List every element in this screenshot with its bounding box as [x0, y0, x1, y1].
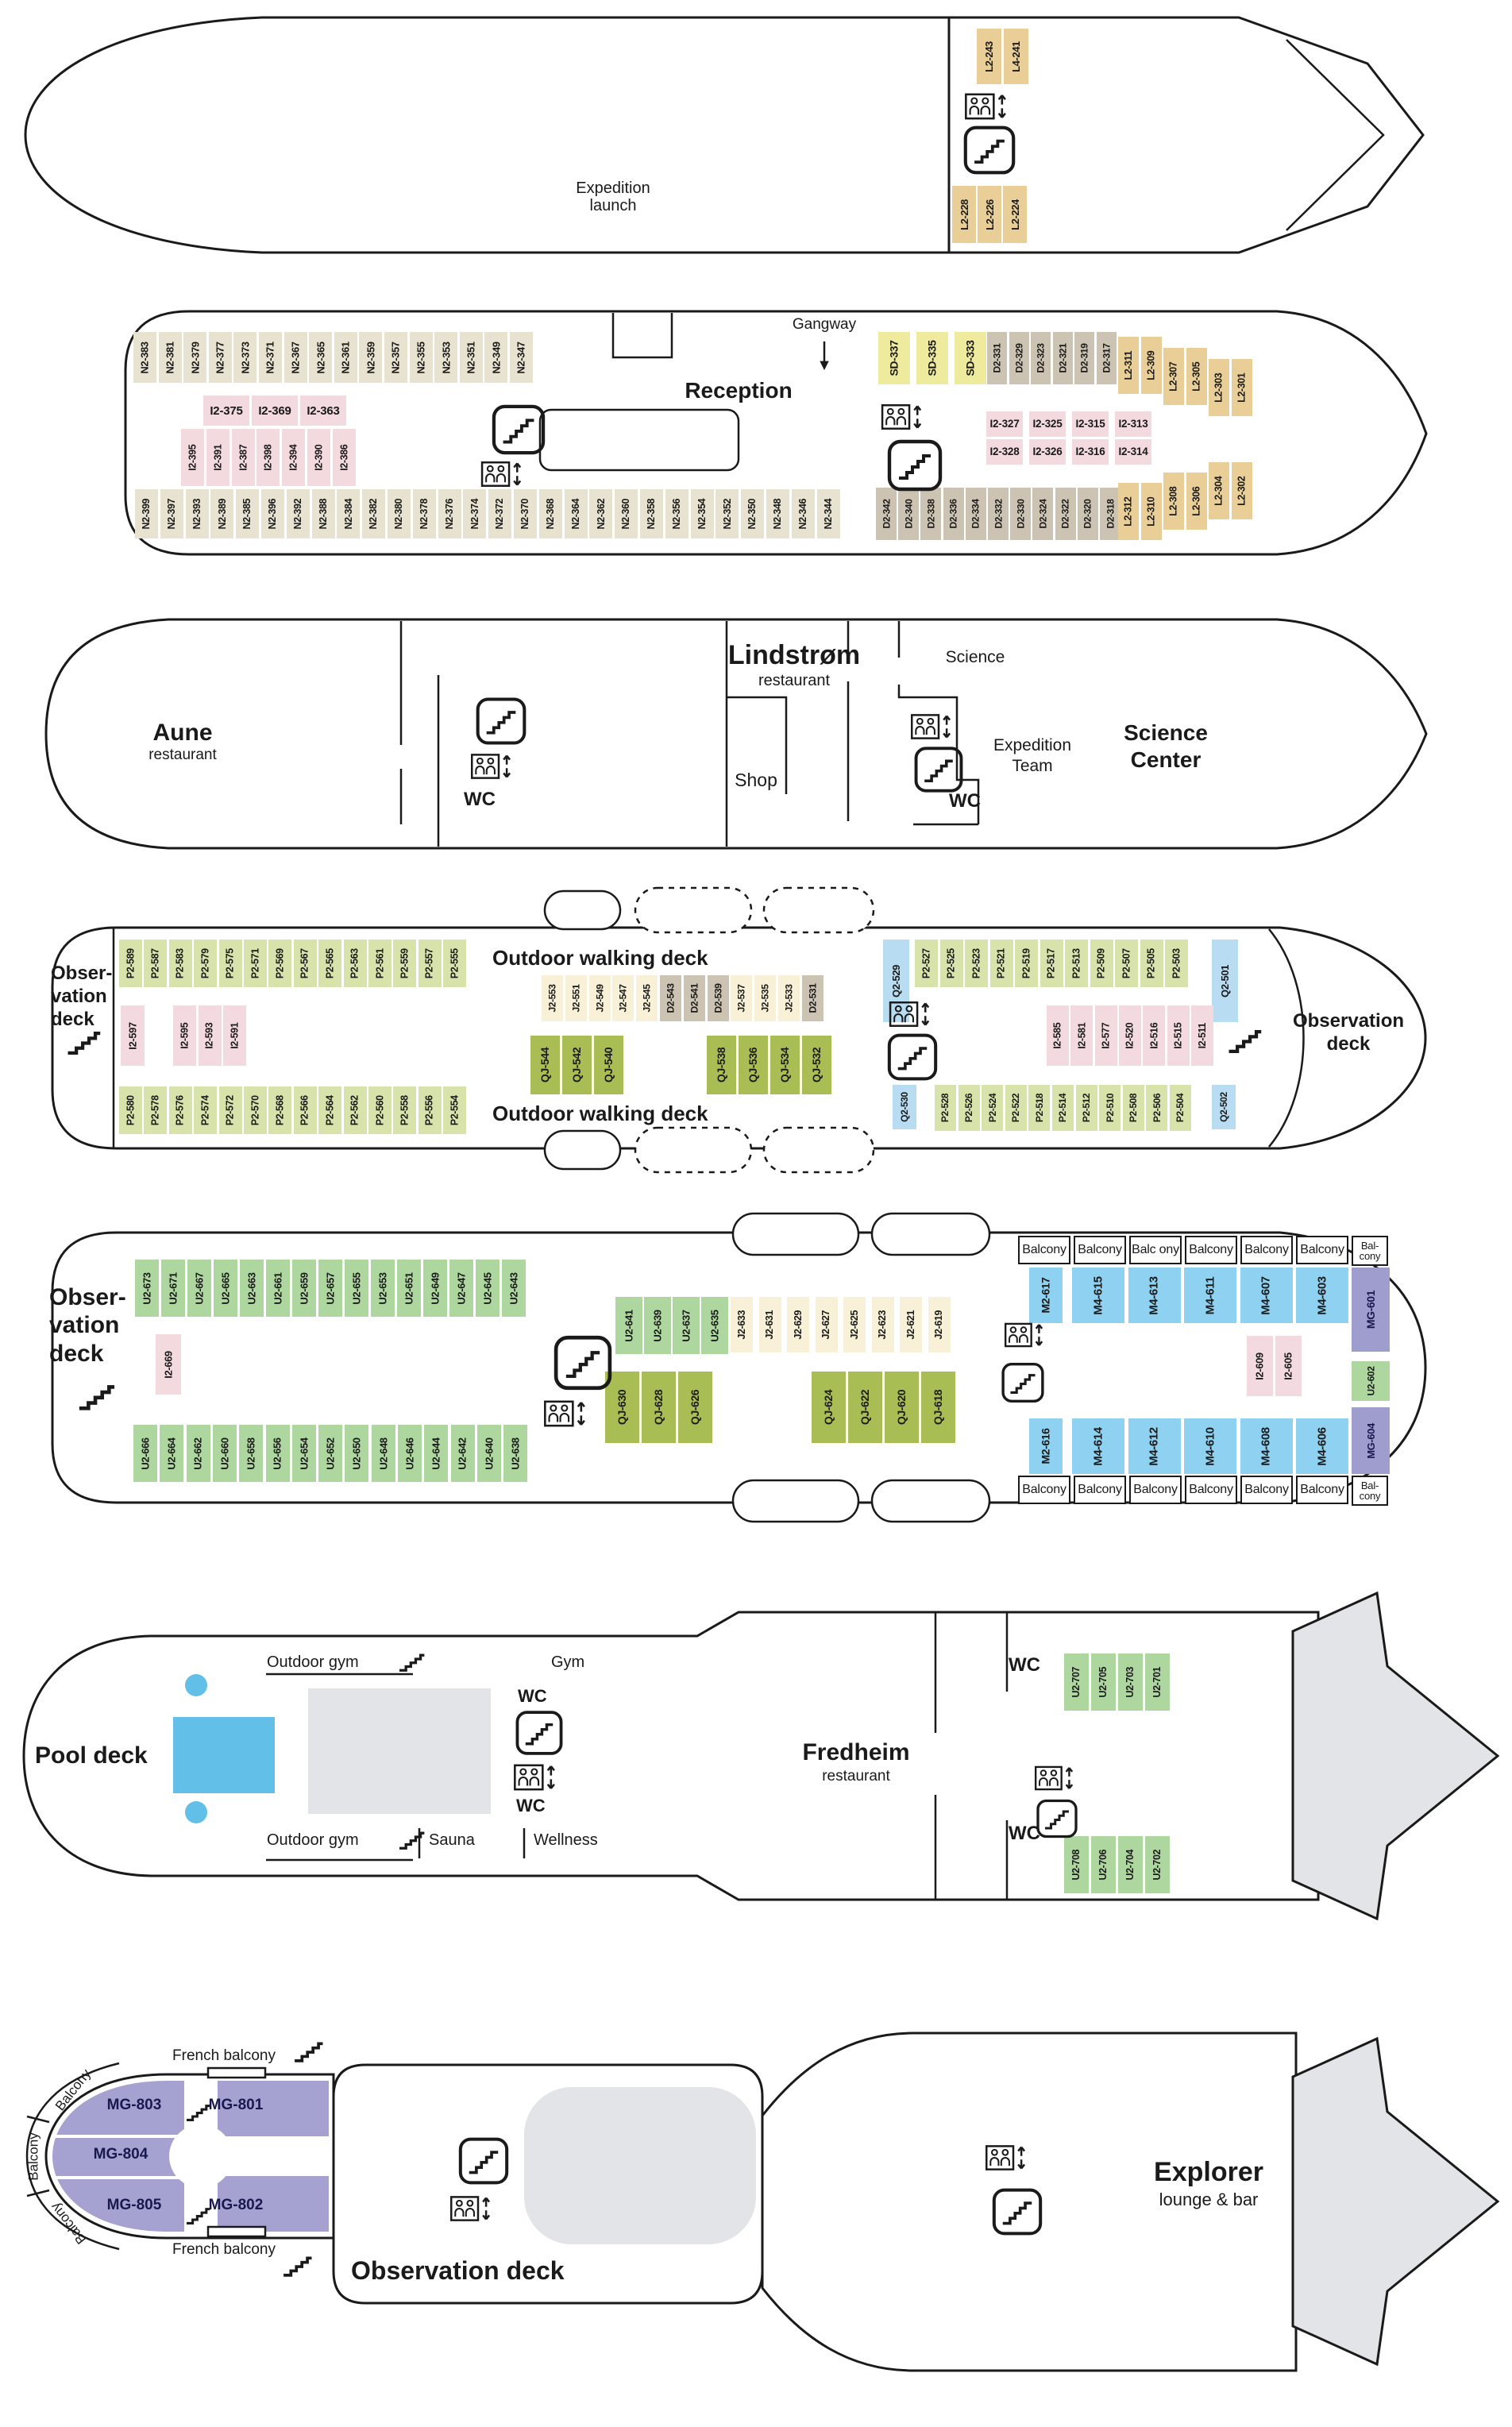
cabin-number: QJ-618 — [933, 1390, 944, 1425]
cabin-i2-577[interactable]: I2-577 — [1095, 1005, 1117, 1066]
cabin-j2-629[interactable]: J2-629 — [787, 1297, 809, 1352]
cabin-mg-604[interactable]: MG-604 — [1352, 1407, 1390, 1474]
cabin-u2-637[interactable]: U2-637 — [673, 1297, 700, 1354]
cabin-l2-226[interactable]: L2-226 — [978, 186, 1001, 243]
cabin-n2-347[interactable]: N2-347 — [510, 332, 533, 383]
cabin-number: M4-613 — [1148, 1276, 1160, 1314]
cabin-p2-503[interactable]: P2-503 — [1165, 940, 1188, 987]
cabin-d2-317[interactable]: D2-317 — [1097, 332, 1117, 384]
cabin-u2-643[interactable]: U2-643 — [502, 1260, 526, 1317]
cabin-p2-510[interactable]: P2-510 — [1099, 1085, 1120, 1131]
cabin-n2-385[interactable]: N2-385 — [236, 489, 259, 538]
cabin-l2-309[interactable]: L2-309 — [1141, 337, 1162, 394]
cabin-p2-576[interactable]: P2-576 — [169, 1086, 192, 1134]
cabin-i2-591[interactable]: I2-591 — [223, 1005, 246, 1066]
cabin-n2-373[interactable]: N2-373 — [233, 332, 256, 383]
cabin-u2-650[interactable]: U2-650 — [345, 1425, 368, 1482]
cabin-i2-605[interactable]: I2-605 — [1275, 1336, 1302, 1396]
cabin-j2-545[interactable]: J2-545 — [636, 975, 658, 1021]
cabin-m4-615[interactable]: M4-615 — [1072, 1268, 1124, 1323]
cabin-number: I2-593 — [205, 1022, 215, 1048]
cabin-number: Balcony — [1189, 1484, 1233, 1496]
cabin-d2-319[interactable]: D2-319 — [1074, 332, 1094, 384]
cabin-i2-391[interactable]: I2-391 — [206, 429, 229, 486]
cabin-n2-355[interactable]: N2-355 — [410, 332, 433, 383]
cabin-number: D2-329 — [1014, 344, 1024, 373]
cabin-m4-603[interactable]: M4-603 — [1296, 1268, 1348, 1323]
cabin-u2-661[interactable]: U2-661 — [266, 1260, 290, 1317]
elevator-icon — [470, 753, 513, 780]
cabin-i2-511[interactable]: I2-511 — [1191, 1005, 1213, 1066]
cabin-u2-664[interactable]: U2-664 — [160, 1425, 183, 1482]
cabin-p2-504[interactable]: P2-504 — [1170, 1085, 1191, 1131]
cabin-u2-658[interactable]: U2-658 — [239, 1425, 263, 1482]
cabin-p2-572[interactable]: P2-572 — [219, 1086, 242, 1134]
cabin-q2-502[interactable]: Q2-502 — [1212, 1085, 1236, 1129]
cabin-number: Q2-530 — [900, 1092, 909, 1122]
cabin-d2-543[interactable]: D2-543 — [660, 975, 681, 1021]
cabin-n2-358[interactable]: N2-358 — [640, 489, 663, 538]
cabin-d2-531[interactable]: D2-531 — [802, 975, 823, 1021]
cabin-p2-580[interactable]: P2-580 — [119, 1086, 142, 1134]
cabin-l2-243[interactable]: L2-243 — [977, 29, 1001, 84]
cabin-u2-648[interactable]: U2-648 — [372, 1425, 395, 1482]
cabin-d2-320[interactable]: D2-320 — [1078, 488, 1098, 540]
cabin-qj-534[interactable]: QJ-534 — [770, 1036, 800, 1094]
cabin-qj-622[interactable]: QJ-622 — [848, 1372, 882, 1443]
cabin-l2-304[interactable]: L2-304 — [1209, 462, 1229, 519]
cabin-u2-703[interactable]: U2-703 — [1118, 1653, 1143, 1711]
cabin-u2-655[interactable]: U2-655 — [345, 1260, 368, 1317]
cabin-m2-617[interactable]: M2-617 — [1029, 1268, 1063, 1323]
cabin-d2-324[interactable]: D2-324 — [1032, 488, 1053, 540]
cabin-q2-501[interactable]: Q2-501 — [1212, 940, 1238, 1022]
cabin-number: J2-533 — [785, 985, 794, 1013]
cabin-i2-314[interactable]: I2-314 — [1115, 439, 1151, 465]
cabin-n2-370[interactable]: N2-370 — [514, 489, 537, 538]
balcony-label: Balcony — [1185, 1476, 1237, 1504]
cabin-p2-564[interactable]: P2-564 — [318, 1086, 341, 1134]
cabin-sd-335[interactable]: SD-335 — [916, 332, 948, 384]
cabin-n2-377[interactable]: N2-377 — [209, 332, 232, 383]
cabin-number: M2-616 — [1040, 1428, 1051, 1464]
stairs-icon — [983, 2187, 1051, 2236]
cabin-u2-706[interactable]: U2-706 — [1091, 1836, 1116, 1893]
cabin-n2-356[interactable]: N2-356 — [665, 489, 688, 538]
cabin-p2-524[interactable]: P2-524 — [982, 1085, 1003, 1131]
cabin-number: I2-363 — [307, 405, 339, 417]
cabin-i2-386[interactable]: I2-386 — [333, 429, 356, 486]
cabin-p2-506[interactable]: P2-506 — [1146, 1085, 1167, 1131]
cabin-u2-673[interactable]: U2-673 — [135, 1260, 159, 1317]
cabin-n2-382[interactable]: N2-382 — [362, 489, 385, 538]
cabin-i2-669[interactable]: I2-669 — [156, 1334, 181, 1395]
cabin-j2-551[interactable]: J2-551 — [565, 975, 587, 1021]
cabin-mg-601[interactable]: MG-601 — [1352, 1268, 1390, 1352]
cabin-n2-379[interactable]: N2-379 — [183, 332, 206, 383]
cabin-number: P2-559 — [400, 948, 411, 978]
cabin-d2-541[interactable]: D2-541 — [684, 975, 705, 1021]
balcony-arc-mid-label: Balcony — [25, 2132, 40, 2180]
cabin-j2-623[interactable]: J2-623 — [872, 1297, 894, 1352]
cabin-l2-308[interactable]: L2-308 — [1163, 473, 1184, 530]
cabin-l2-228[interactable]: L2-228 — [952, 186, 976, 243]
elevator-icon — [880, 403, 924, 430]
cabin-p2-562[interactable]: P2-562 — [344, 1086, 367, 1134]
cabin-number: U2-706 — [1098, 1850, 1109, 1881]
cabin-u2-708[interactable]: U2-708 — [1064, 1836, 1089, 1893]
cabin-p2-555[interactable]: P2-555 — [443, 940, 466, 987]
cabin-p2-557[interactable]: P2-557 — [418, 940, 442, 987]
cabin-i2-313[interactable]: I2-313 — [1115, 411, 1151, 437]
cabin-p2-574[interactable]: P2-574 — [194, 1086, 217, 1134]
cabin-p2-563[interactable]: P2-563 — [344, 940, 367, 987]
cabin-n2-349[interactable]: N2-349 — [484, 332, 507, 383]
cabin-n2-368[interactable]: N2-368 — [539, 489, 562, 538]
cabin-i2-369[interactable]: I2-369 — [252, 395, 298, 426]
cabin-j2-627[interactable]: J2-627 — [816, 1297, 838, 1352]
cabin-n2-361[interactable]: N2-361 — [334, 332, 357, 383]
cabin-number: P2-564 — [325, 1095, 335, 1125]
cabin-l2-312[interactable]: L2-312 — [1118, 483, 1139, 540]
cabin-n2-353[interactable]: N2-353 — [434, 332, 457, 383]
cabin-p2-527[interactable]: P2-527 — [915, 940, 938, 987]
wc-left-bottom-label: WC — [516, 1796, 546, 1816]
cabin-u2-646[interactable]: U2-646 — [398, 1425, 422, 1482]
cabin-l2-224[interactable]: L2-224 — [1003, 186, 1027, 243]
cabin-m4-612[interactable]: M4-612 — [1128, 1418, 1181, 1474]
cabin-n2-399[interactable]: N2-399 — [135, 489, 158, 538]
cabin-p2-565[interactable]: P2-565 — [318, 940, 341, 987]
cabin-i2-325[interactable]: I2-325 — [1029, 411, 1066, 437]
cabin-p2-508[interactable]: P2-508 — [1123, 1085, 1144, 1131]
cabin-u2-657[interactable]: U2-657 — [318, 1260, 342, 1317]
cabin-p2-519[interactable]: P2-519 — [1015, 940, 1038, 987]
cabin-number: Q2-529 — [891, 965, 901, 997]
balcony-label: Balcony — [1129, 1476, 1182, 1504]
cabin-number: I2-386 — [339, 444, 349, 470]
cabin-p2-570[interactable]: P2-570 — [244, 1086, 267, 1134]
cabin-n2-381[interactable]: N2-381 — [159, 332, 182, 383]
cabin-j2-633[interactable]: J2-633 — [731, 1297, 753, 1352]
cabin-n2-367[interactable]: N2-367 — [284, 332, 307, 383]
cabin-n2-346[interactable]: N2-346 — [792, 489, 815, 538]
cabin-i2-593[interactable]: I2-593 — [199, 1005, 222, 1066]
cabin-p2-505[interactable]: P2-505 — [1140, 940, 1163, 987]
cabin-d2-332[interactable]: D2-332 — [988, 488, 1009, 540]
cabin-p2-526[interactable]: P2-526 — [958, 1085, 980, 1131]
cabin-p2-575[interactable]: P2-575 — [219, 940, 242, 987]
cabin-u2-647[interactable]: U2-647 — [449, 1260, 473, 1317]
cabin-number: N2-397 — [167, 499, 177, 530]
cabin-number: L2-312 — [1124, 496, 1134, 526]
cabin-n2-360[interactable]: N2-360 — [615, 489, 638, 538]
cabin-n2-378[interactable]: N2-378 — [413, 489, 436, 538]
cabin-l2-303[interactable]: L2-303 — [1209, 359, 1229, 416]
cabin-number: N2-378 — [419, 499, 430, 530]
cabin-u2-662[interactable]: U2-662 — [187, 1425, 210, 1482]
cabin-qj-536[interactable]: QJ-536 — [739, 1036, 768, 1094]
cabin-mg-804-label: MG-804 — [94, 2146, 148, 2163]
cabin-n2-388[interactable]: N2-388 — [312, 489, 335, 538]
cabin-l4-241[interactable]: L4-241 — [1004, 29, 1028, 84]
cabin-i2-375[interactable]: I2-375 — [203, 395, 249, 426]
cabin-p2-514[interactable]: P2-514 — [1052, 1085, 1074, 1131]
cabin-n2-344[interactable]: N2-344 — [817, 489, 840, 538]
cabin-j2-533[interactable]: J2-533 — [778, 975, 800, 1021]
cabin-n2-365[interactable]: N2-365 — [309, 332, 332, 383]
cabin-m2-616[interactable]: M2-616 — [1029, 1418, 1063, 1474]
cabin-u2-667[interactable]: U2-667 — [187, 1260, 211, 1317]
cabin-u2-602[interactable]: U2-602 — [1352, 1361, 1390, 1401]
cabin-l2-306[interactable]: L2-306 — [1186, 473, 1207, 530]
cabin-i2-316[interactable]: I2-316 — [1072, 439, 1109, 465]
cabin-number: P2-567 — [300, 948, 310, 978]
cabin-j2-625[interactable]: J2-625 — [843, 1297, 866, 1352]
cabin-u2-663[interactable]: U2-663 — [240, 1260, 264, 1317]
cabin-u2-638[interactable]: U2-638 — [503, 1425, 527, 1482]
cabin-n2-348[interactable]: N2-348 — [766, 489, 789, 538]
cabin-n2-354[interactable]: N2-354 — [691, 489, 714, 538]
cabin-u2-665[interactable]: U2-665 — [214, 1260, 237, 1317]
cabin-u2-656[interactable]: U2-656 — [266, 1425, 290, 1482]
cabin-q2-530[interactable]: Q2-530 — [893, 1085, 916, 1129]
cabin-p2-566[interactable]: P2-566 — [294, 1086, 317, 1134]
cabin-number: P2-510 — [1105, 1094, 1115, 1122]
cabin-j2-619[interactable]: J2-619 — [928, 1297, 951, 1352]
cabin-qj-540[interactable]: QJ-540 — [594, 1036, 623, 1094]
cabin-p2-522[interactable]: P2-522 — [1005, 1085, 1027, 1131]
cabin-qj-618[interactable]: QJ-618 — [921, 1372, 955, 1443]
cabin-number: Balcony — [1022, 1484, 1066, 1496]
cabin-i2-395[interactable]: I2-395 — [181, 429, 204, 486]
cabin-i2-390[interactable]: I2-390 — [307, 429, 330, 486]
cabin-p2-583[interactable]: P2-583 — [169, 940, 192, 987]
cabin-p2-589[interactable]: P2-589 — [119, 940, 142, 987]
cabin-sd-337[interactable]: SD-337 — [878, 332, 910, 384]
cabin-m4-611[interactable]: M4-611 — [1184, 1268, 1236, 1323]
cabin-p2-523[interactable]: P2-523 — [965, 940, 988, 987]
cabin-j2-547[interactable]: J2-547 — [612, 975, 634, 1021]
cabin-p2-559[interactable]: P2-559 — [393, 940, 416, 987]
cabin-u2-654[interactable]: U2-654 — [292, 1425, 316, 1482]
cabin-n2-351[interactable]: N2-351 — [460, 332, 483, 383]
cabin-l2-311[interactable]: L2-311 — [1118, 337, 1139, 394]
cabin-u2-644[interactable]: U2-644 — [424, 1425, 448, 1482]
cabin-sd-333[interactable]: SD-333 — [955, 332, 986, 384]
cabin-u2-641[interactable]: U2-641 — [615, 1297, 642, 1354]
cabin-d2-330[interactable]: D2-330 — [1010, 488, 1031, 540]
cabin-l2-301[interactable]: L2-301 — [1232, 359, 1252, 416]
cabin-qj-628[interactable]: QJ-628 — [642, 1372, 676, 1443]
cabin-n2-357[interactable]: N2-357 — [384, 332, 407, 383]
cabin-p2-558[interactable]: P2-558 — [393, 1086, 416, 1134]
cabin-j2-553[interactable]: J2-553 — [542, 975, 563, 1021]
cabin-p2-556[interactable]: P2-556 — [418, 1086, 442, 1134]
cabin-i2-315[interactable]: I2-315 — [1072, 411, 1109, 437]
cabin-i2-328[interactable]: I2-328 — [986, 439, 1023, 465]
cabin-n2-380[interactable]: N2-380 — [388, 489, 411, 538]
cabin-p2-579[interactable]: P2-579 — [194, 940, 217, 987]
stairs-icon — [397, 1827, 426, 1850]
wc-right-label: WC — [949, 791, 981, 812]
cabin-n2-392[interactable]: N2-392 — [287, 489, 310, 538]
cabin-p2-513[interactable]: P2-513 — [1065, 940, 1088, 987]
cabin-number: J2-633 — [737, 1310, 747, 1340]
cabin-number: L2-301 — [1236, 372, 1247, 402]
cabin-mg-803-label: MG-803 — [107, 2097, 162, 2113]
cabin-u2-702[interactable]: U2-702 — [1145, 1836, 1170, 1893]
cabin-u2-651[interactable]: U2-651 — [397, 1260, 421, 1317]
cabin-n2-350[interactable]: N2-350 — [741, 489, 764, 538]
stairs-icon — [292, 2036, 324, 2063]
cabin-number: SD-333 — [965, 340, 976, 376]
cabin-m4-606[interactable]: M4-606 — [1296, 1418, 1348, 1474]
cabin-u2-660[interactable]: U2-660 — [213, 1425, 237, 1482]
cabin-u2-645[interactable]: U2-645 — [476, 1260, 499, 1317]
stairs-icon — [886, 1032, 939, 1082]
cabin-u2-652[interactable]: U2-652 — [318, 1425, 342, 1482]
cabin-i2-398[interactable]: I2-398 — [256, 429, 280, 486]
cabin-i2-516[interactable]: I2-516 — [1143, 1005, 1165, 1066]
cabin-number: U2-647 — [457, 1272, 467, 1304]
cabin-u2-639[interactable]: U2-639 — [644, 1297, 671, 1354]
cabin-u2-642[interactable]: U2-642 — [451, 1425, 475, 1482]
cabin-d2-321[interactable]: D2-321 — [1053, 332, 1073, 384]
cabin-l2-302[interactable]: L2-302 — [1232, 462, 1252, 519]
cabin-l2-307[interactable]: L2-307 — [1163, 348, 1184, 405]
cabin-d2-329[interactable]: D2-329 — [1009, 332, 1029, 384]
cabin-j2-535[interactable]: J2-535 — [754, 975, 776, 1021]
cabin-p2-528[interactable]: P2-528 — [935, 1085, 956, 1131]
cabin-n2-374[interactable]: N2-374 — [463, 489, 486, 538]
cabin-p2-525[interactable]: P2-525 — [940, 940, 963, 987]
cabin-p2-578[interactable]: P2-578 — [144, 1086, 167, 1134]
cabin-p2-569[interactable]: P2-569 — [268, 940, 291, 987]
cabin-n2-393[interactable]: N2-393 — [186, 489, 209, 538]
cabin-n2-384[interactable]: N2-384 — [337, 489, 360, 538]
cabin-u2-705[interactable]: U2-705 — [1091, 1653, 1116, 1711]
cabin-j2-549[interactable]: J2-549 — [589, 975, 611, 1021]
cabin-m4-607[interactable]: M4-607 — [1240, 1268, 1293, 1323]
cabin-d2-334[interactable]: D2-334 — [966, 488, 986, 540]
cabin-n2-362[interactable]: N2-362 — [589, 489, 612, 538]
cabin-i2-326[interactable]: I2-326 — [1029, 439, 1066, 465]
cabin-u2-704[interactable]: U2-704 — [1118, 1836, 1143, 1893]
cabin-n2-364[interactable]: N2-364 — [565, 489, 588, 538]
cabin-u2-649[interactable]: U2-649 — [423, 1260, 447, 1317]
cabin-m4-610[interactable]: M4-610 — [1184, 1418, 1236, 1474]
cabin-qj-620[interactable]: QJ-620 — [885, 1372, 919, 1443]
cabin-p2-554[interactable]: P2-554 — [443, 1086, 466, 1134]
cabin-n2-359[interactable]: N2-359 — [359, 332, 382, 383]
cabin-i2-363[interactable]: I2-363 — [300, 395, 346, 426]
stairs-icon — [962, 124, 1016, 176]
cabin-number: N2-358 — [646, 499, 657, 530]
cabin-u2-659[interactable]: U2-659 — [292, 1260, 316, 1317]
cabin-n2-397[interactable]: N2-397 — [160, 489, 183, 538]
cabin-i2-520[interactable]: I2-520 — [1119, 1005, 1141, 1066]
cabin-d2-322[interactable]: D2-322 — [1055, 488, 1076, 540]
cabin-p2-567[interactable]: P2-567 — [294, 940, 317, 987]
cabin-n2-371[interactable]: N2-371 — [259, 332, 282, 383]
cabin-n2-372[interactable]: N2-372 — [488, 489, 511, 538]
cabin-qj-542[interactable]: QJ-542 — [562, 1036, 592, 1094]
cabin-m4-614[interactable]: M4-614 — [1072, 1418, 1124, 1474]
cabin-u2-635[interactable]: U2-635 — [701, 1297, 728, 1354]
cabin-i2-581[interactable]: I2-581 — [1070, 1005, 1093, 1066]
cabin-number: QJ-538 — [716, 1048, 727, 1082]
deck-1-hull — [25, 17, 1423, 253]
cabin-j2-631[interactable]: J2-631 — [759, 1297, 781, 1352]
cabin-u2-666[interactable]: U2-666 — [133, 1425, 157, 1482]
cabin-number: D2-330 — [1016, 500, 1025, 529]
cabin-p2-521[interactable]: P2-521 — [990, 940, 1013, 987]
cabin-i2-394[interactable]: I2-394 — [282, 429, 305, 486]
cabin-p2-587[interactable]: P2-587 — [144, 940, 167, 987]
cabin-qj-544[interactable]: QJ-544 — [530, 1036, 560, 1094]
tender-boat — [733, 1213, 858, 1255]
cabin-d2-336[interactable]: D2-336 — [943, 488, 964, 540]
cabin-i2-515[interactable]: I2-515 — [1167, 1005, 1190, 1066]
cabin-i2-327[interactable]: I2-327 — [986, 411, 1023, 437]
cabin-i2-597[interactable]: I2-597 — [121, 1005, 145, 1066]
cabin-n2-383[interactable]: N2-383 — [133, 332, 156, 383]
cabin-n2-389[interactable]: N2-389 — [210, 489, 233, 538]
cabin-n2-352[interactable]: N2-352 — [715, 489, 739, 538]
cabin-p2-512[interactable]: P2-512 — [1076, 1085, 1097, 1131]
cabin-j2-537[interactable]: J2-537 — [731, 975, 752, 1021]
cabin-p2-517[interactable]: P2-517 — [1040, 940, 1063, 987]
cabin-p2-571[interactable]: P2-571 — [244, 940, 267, 987]
cabin-number: N2-371 — [265, 341, 276, 373]
cabin-d2-323[interactable]: D2-323 — [1031, 332, 1051, 384]
cabin-m4-613[interactable]: M4-613 — [1128, 1268, 1181, 1323]
cabin-u2-653[interactable]: U2-653 — [371, 1260, 395, 1317]
cabin-p2-560[interactable]: P2-560 — [368, 1086, 391, 1134]
cabin-qj-624[interactable]: QJ-624 — [812, 1372, 846, 1443]
cabin-u2-707[interactable]: U2-707 — [1064, 1653, 1089, 1711]
cabin-number: P2-578 — [151, 1095, 161, 1125]
cabin-p2-509[interactable]: P2-509 — [1090, 940, 1113, 987]
cabin-u2-671[interactable]: U2-671 — [161, 1260, 185, 1317]
cabin-i2-585[interactable]: I2-585 — [1047, 1005, 1069, 1066]
cabin-i2-595[interactable]: I2-595 — [173, 1005, 196, 1066]
cabin-p2-518[interactable]: P2-518 — [1028, 1085, 1050, 1131]
aune-label: Aune — [153, 720, 213, 747]
cabin-d2-331[interactable]: D2-331 — [987, 332, 1007, 384]
cabin-u2-640[interactable]: U2-640 — [477, 1425, 501, 1482]
cabin-l2-305[interactable]: L2-305 — [1186, 348, 1207, 405]
cabin-qj-538[interactable]: QJ-538 — [707, 1036, 736, 1094]
cabin-n2-376[interactable]: N2-376 — [438, 489, 461, 538]
cabin-p2-568[interactable]: P2-568 — [268, 1086, 291, 1134]
cabin-p2-507[interactable]: P2-507 — [1115, 940, 1138, 987]
cabin-i2-387[interactable]: I2-387 — [232, 429, 255, 486]
cabin-number: M4-615 — [1093, 1276, 1105, 1314]
cabin-n2-396[interactable]: N2-396 — [261, 489, 284, 538]
cabin-p2-561[interactable]: P2-561 — [368, 940, 391, 987]
cabin-u2-701[interactable]: U2-701 — [1145, 1653, 1170, 1711]
cabin-qj-532[interactable]: QJ-532 — [802, 1036, 831, 1094]
cabin-qj-626[interactable]: QJ-626 — [678, 1372, 712, 1443]
cabin-l2-310[interactable]: L2-310 — [1141, 483, 1162, 540]
cabin-j2-621[interactable]: J2-621 — [900, 1297, 922, 1352]
cabin-d2-539[interactable]: D2-539 — [708, 975, 729, 1021]
cabin-number: N2-354 — [697, 499, 708, 530]
cabin-m4-608[interactable]: M4-608 — [1240, 1418, 1293, 1474]
cabin-i2-609[interactable]: I2-609 — [1247, 1336, 1273, 1396]
